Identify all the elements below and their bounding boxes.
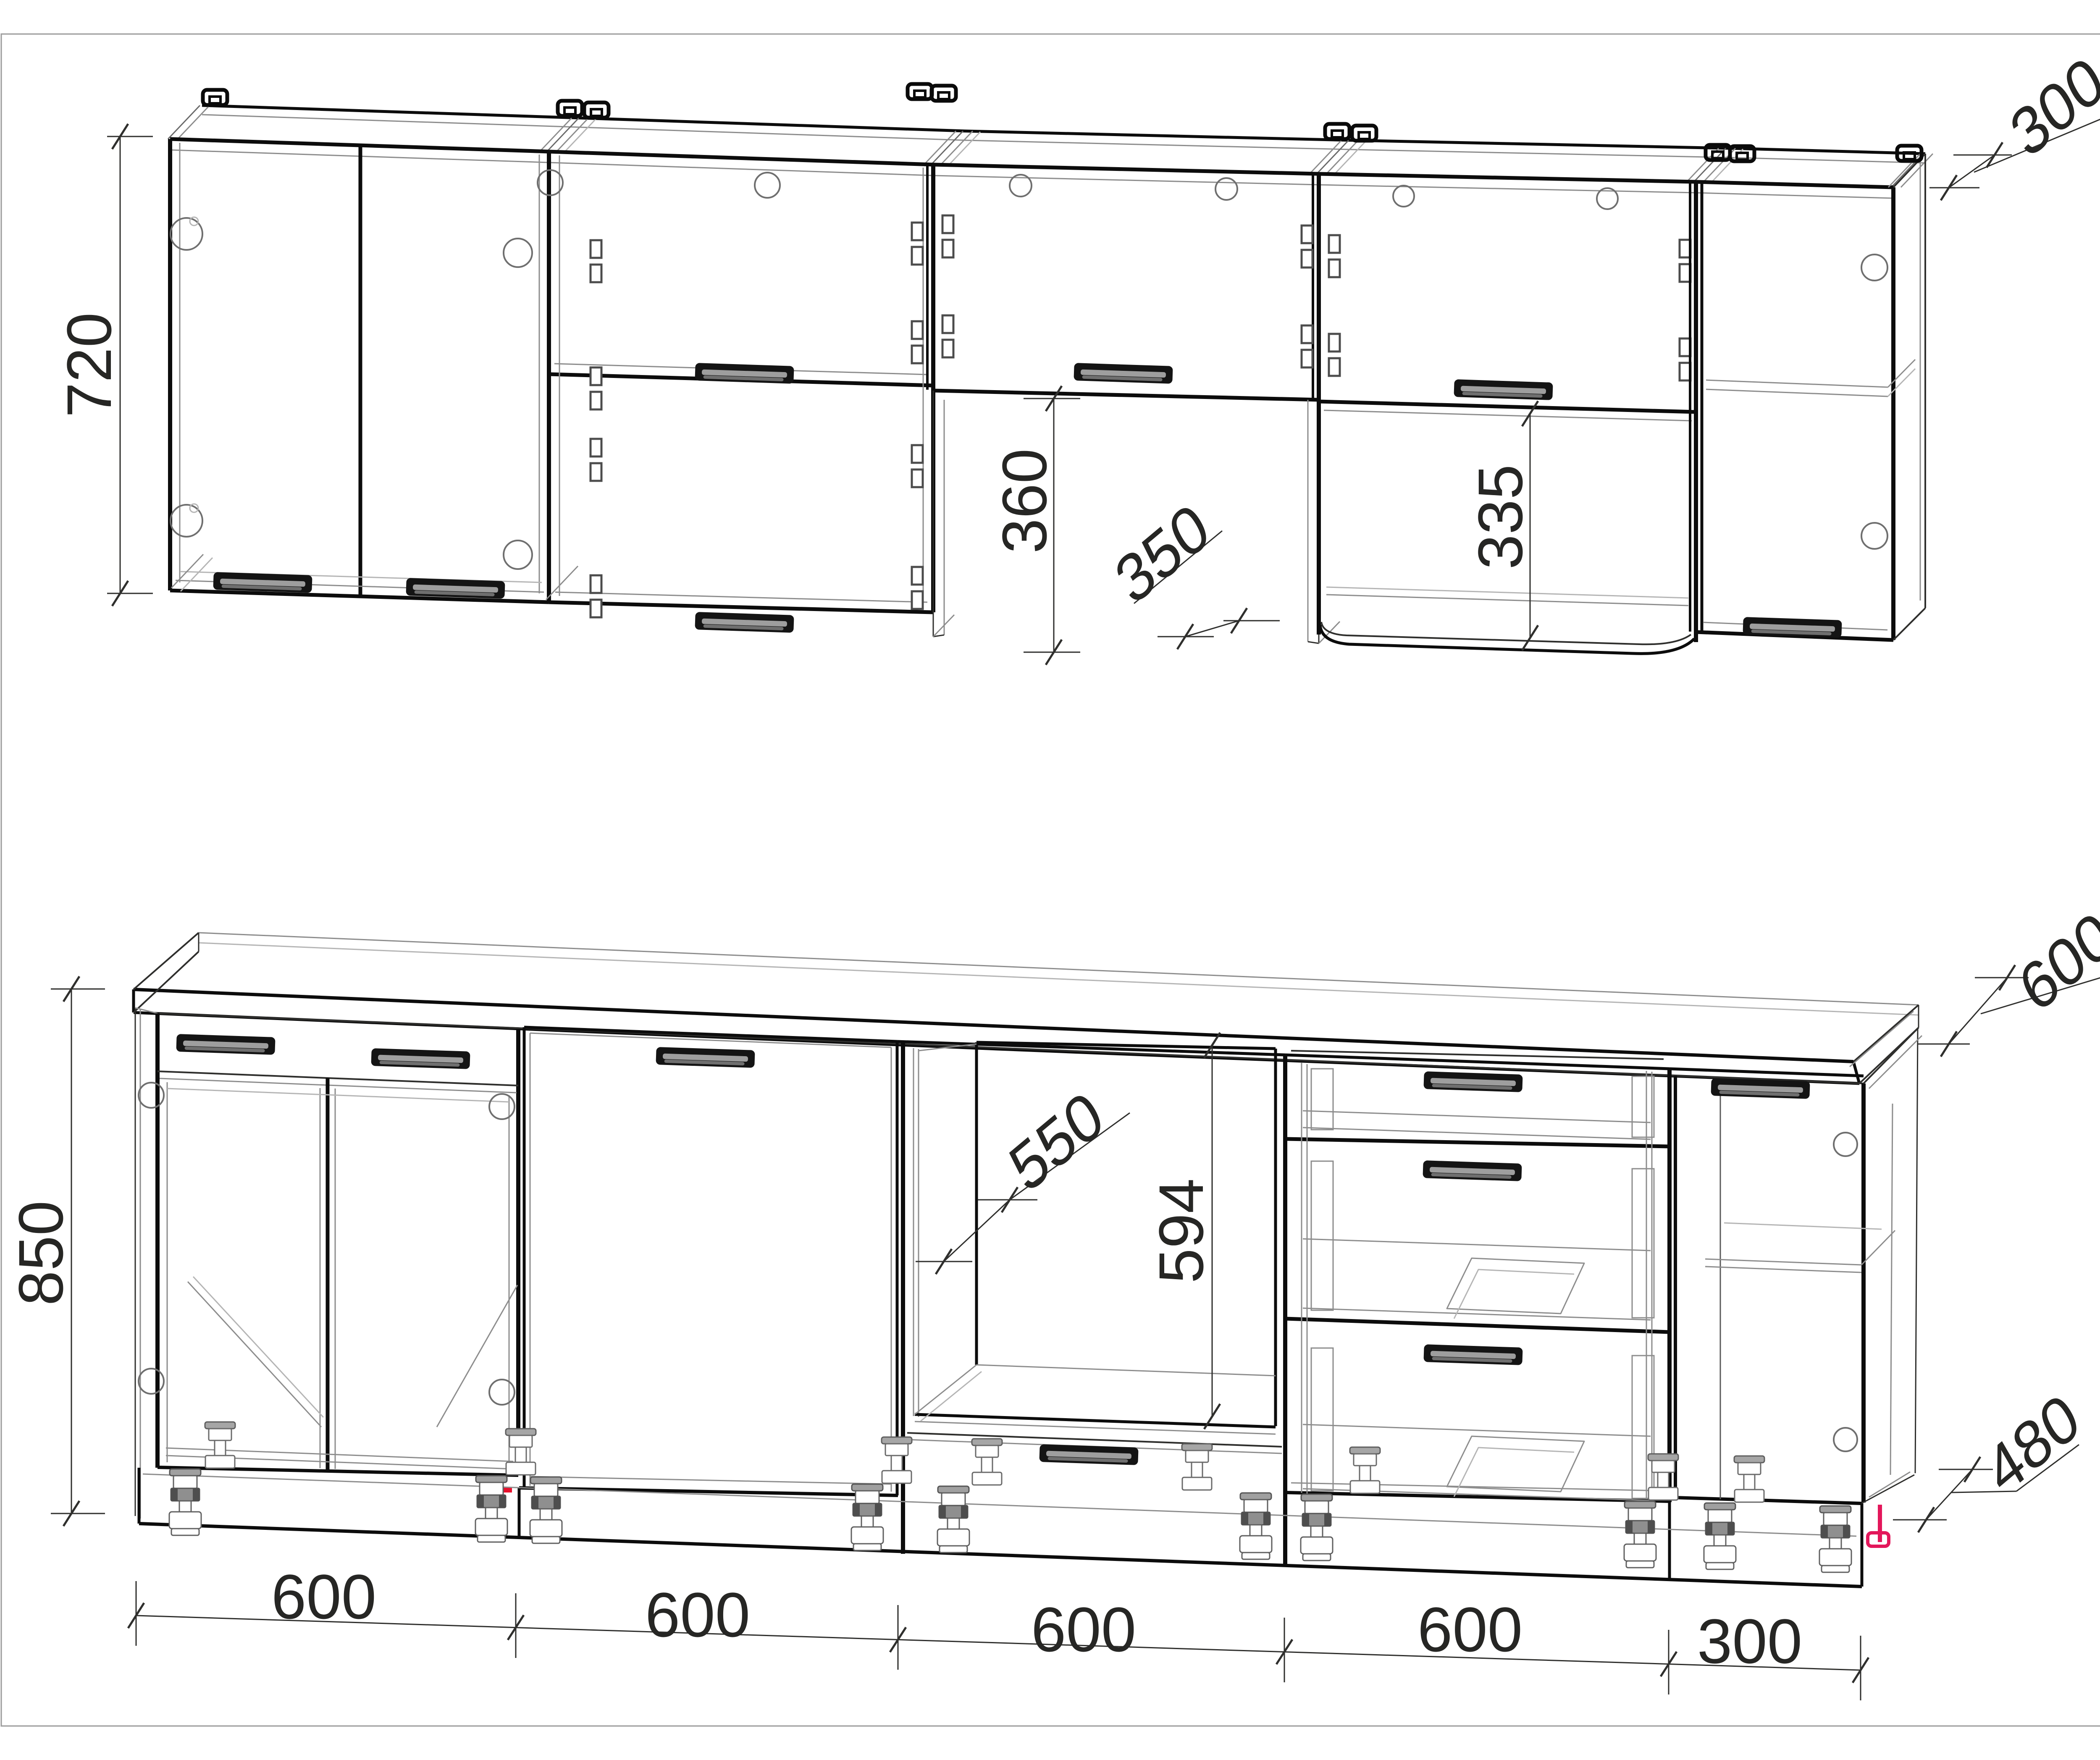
svg-text:600: 600 xyxy=(271,1561,376,1632)
svg-text:335: 335 xyxy=(1465,464,1536,569)
svg-text:600: 600 xyxy=(1417,1594,1522,1665)
svg-text:600: 600 xyxy=(645,1579,750,1650)
svg-text:360: 360 xyxy=(989,449,1060,553)
svg-text:850: 850 xyxy=(5,1201,76,1306)
svg-text:594: 594 xyxy=(1146,1178,1216,1283)
svg-text:600: 600 xyxy=(1031,1594,1136,1665)
svg-text:300: 300 xyxy=(1697,1606,1802,1676)
svg-text:720: 720 xyxy=(54,312,124,417)
